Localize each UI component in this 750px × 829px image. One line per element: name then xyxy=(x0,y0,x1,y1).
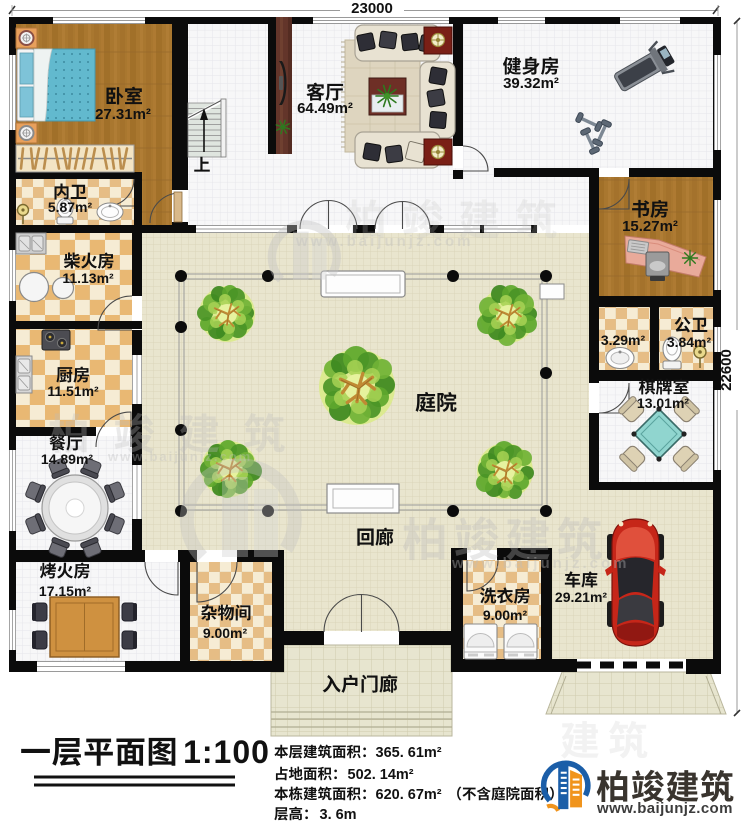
svg-text:22600: 22600 xyxy=(718,349,735,391)
svg-text:5.87m²: 5.87m² xyxy=(48,199,93,215)
svg-text:14.89m²: 14.89m² xyxy=(41,451,93,467)
svg-text:www.baijunjz.com: www.baijunjz.com xyxy=(596,800,733,817)
svg-text:11.51m²: 11.51m² xyxy=(47,383,99,399)
svg-text:3.29m²: 3.29m² xyxy=(601,332,646,348)
svg-text:23000: 23000 xyxy=(351,0,393,17)
svg-text:620. 67m²: 620. 67m² xyxy=(376,787,442,803)
svg-text:39.32m²: 39.32m² xyxy=(503,75,559,92)
svg-text:www.baijunjz.com: www.baijunjz.com xyxy=(295,233,473,250)
svg-text:3. 6m: 3. 6m xyxy=(320,807,357,823)
svg-text:11.13m²: 11.13m² xyxy=(62,270,114,286)
svg-text:www.baijunjz.com: www.baijunjz.com xyxy=(451,555,629,572)
svg-text:27.31m²: 27.31m² xyxy=(95,106,151,123)
svg-text:64.49m²: 64.49m² xyxy=(297,100,353,117)
svg-text:3.84m²: 3.84m² xyxy=(667,334,712,350)
svg-text:15.27m²: 15.27m² xyxy=(622,218,678,235)
svg-text:9.00m²: 9.00m² xyxy=(203,625,248,641)
svg-text:17.15m²: 17.15m² xyxy=(39,583,91,599)
svg-text:13.01m²: 13.01m² xyxy=(637,395,689,411)
svg-text:29.21m²: 29.21m² xyxy=(555,589,607,605)
svg-text:365. 61m²: 365. 61m² xyxy=(376,745,442,761)
svg-text:502. 14m²: 502. 14m² xyxy=(348,767,414,783)
svg-text:1:100: 1:100 xyxy=(183,734,270,770)
svg-text:9.00m²: 9.00m² xyxy=(483,607,528,623)
